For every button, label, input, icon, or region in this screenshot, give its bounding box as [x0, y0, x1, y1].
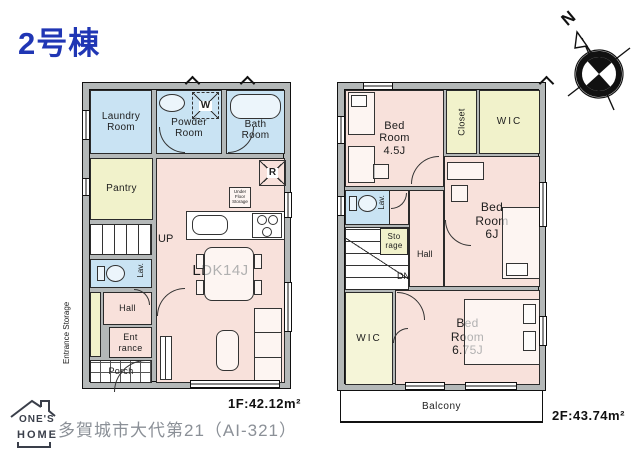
closet-label: Closet	[456, 108, 466, 135]
stairs-dn-label: DN	[397, 272, 410, 282]
room-wic-top: WIC	[479, 90, 540, 154]
lav-2f-label: Lav.	[378, 195, 387, 210]
toilet-bowl-2f	[358, 195, 377, 212]
room-hall-2f	[409, 190, 444, 287]
page-title: 2号棟	[18, 18, 100, 63]
bathtub	[230, 94, 281, 119]
tv-board	[160, 336, 172, 380]
coffee-table	[216, 330, 239, 371]
dining-chair	[254, 280, 262, 295]
desk	[447, 162, 484, 180]
room-storage: Sto rage	[380, 228, 408, 255]
window	[363, 82, 393, 90]
powder-sink	[159, 94, 185, 112]
floor1-area-label: 1F:42.12m²	[228, 396, 301, 411]
compass-north-label: N	[558, 7, 580, 29]
window	[284, 192, 292, 218]
window	[337, 116, 345, 144]
floorplan-sheet: 2号棟 N Laundry Room Powder Room Bath Room…	[0, 0, 640, 453]
vent-marker-icon	[185, 76, 201, 92]
stairs-1f	[90, 224, 152, 255]
toilet-bowl-1f	[106, 265, 125, 282]
vent-marker-icon	[240, 76, 256, 92]
entrance-storage-cabinet	[90, 292, 101, 357]
window	[190, 380, 280, 388]
window	[337, 196, 345, 216]
ones-home-logo: ONE'S HOME	[8, 396, 60, 450]
window	[405, 382, 445, 390]
under-floor-storage: Under Floor Storage	[229, 187, 251, 208]
balcony: Balcony	[340, 390, 543, 423]
stairs-up-label: UP	[158, 233, 173, 245]
property-address: 多賀城市大代第21（AI-321）	[58, 416, 297, 441]
toilet-tank-1f	[97, 266, 105, 281]
hall-2f-label: Hall	[417, 250, 433, 260]
room-pantry: Pantry	[90, 158, 153, 220]
logo-home-text: HOME	[17, 429, 58, 441]
vent-marker-icon	[539, 76, 555, 92]
lav-1f-label: Lav.	[137, 263, 146, 278]
floor2-area-label: 2F:43.74m²	[552, 408, 625, 423]
window	[465, 382, 517, 390]
window	[82, 110, 90, 140]
washer-box: W	[192, 92, 219, 119]
kitchen-sink	[192, 215, 228, 235]
dining-chair	[196, 280, 204, 295]
desk	[348, 146, 375, 183]
window	[539, 182, 547, 227]
room-entrance: Ent rance	[109, 327, 152, 358]
dining-chair	[196, 254, 204, 269]
pillow	[351, 95, 367, 107]
dining-table	[204, 247, 254, 301]
logo-ones-text: ONE'S	[19, 414, 55, 425]
dining-chair	[254, 254, 262, 269]
toilet-tank-2f	[349, 196, 357, 211]
refrigerator-box: R	[259, 160, 286, 186]
window	[284, 282, 292, 332]
floorplan-2f: Bed Room 4.5J Closet WIC Bed Room 6J Sto…	[337, 82, 546, 391]
chair	[451, 185, 468, 202]
floorplan-1f: Laundry Room Powder Room Bath Room Pantr…	[82, 82, 291, 389]
window	[82, 178, 90, 196]
pillow	[523, 304, 536, 324]
chair	[373, 164, 389, 179]
room-closet: Closet	[446, 90, 477, 154]
pillow	[506, 263, 528, 276]
room-laundry: Laundry Room	[90, 90, 152, 154]
compass-icon: N	[556, 2, 640, 114]
entrance-storage-label: Entrance Storage	[63, 272, 72, 364]
stove	[252, 213, 282, 238]
sofa	[254, 308, 282, 383]
pillow	[523, 331, 536, 351]
window	[539, 316, 547, 346]
room-wic-bottom: WIC	[345, 292, 393, 385]
